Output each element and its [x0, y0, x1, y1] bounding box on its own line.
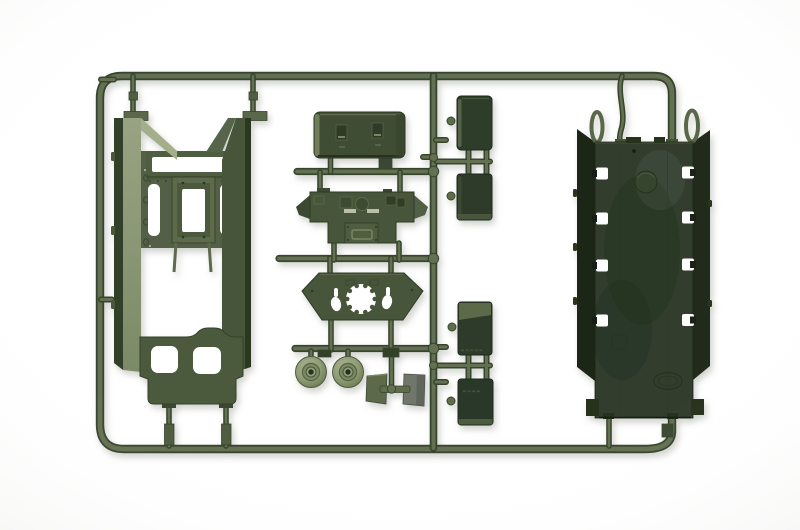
hatch-circle — [356, 198, 369, 211]
engine-deck-center — [345, 223, 378, 243]
plate-left-sidewall — [577, 129, 595, 381]
part-roof-box — [314, 112, 405, 158]
round-emboss — [635, 171, 657, 193]
left-wall-face — [123, 118, 141, 372]
square-cutout — [193, 347, 221, 374]
turret-ring-opening — [346, 284, 376, 314]
left-wall-edge — [114, 118, 123, 370]
beam-window-cutout — [152, 157, 230, 172]
right-wall-edge — [245, 118, 251, 369]
model-sprue-photo: Olive green injection-molded plastic mod… — [0, 0, 800, 530]
oblong-slot — [148, 184, 160, 236]
road-wheel — [333, 357, 364, 388]
bracket-cutout — [182, 189, 205, 232]
sprue-photo-svg: Olive green injection-molded plastic mod… — [0, 0, 800, 530]
plate-right-sidewall — [693, 130, 710, 380]
road-wheel — [296, 357, 327, 388]
plate-foot — [691, 399, 704, 415]
square-cutout — [151, 346, 178, 373]
part-turret-ring-plate — [302, 273, 423, 320]
plate-foot — [586, 399, 599, 416]
part-hull-bottom-plate — [573, 111, 712, 420]
